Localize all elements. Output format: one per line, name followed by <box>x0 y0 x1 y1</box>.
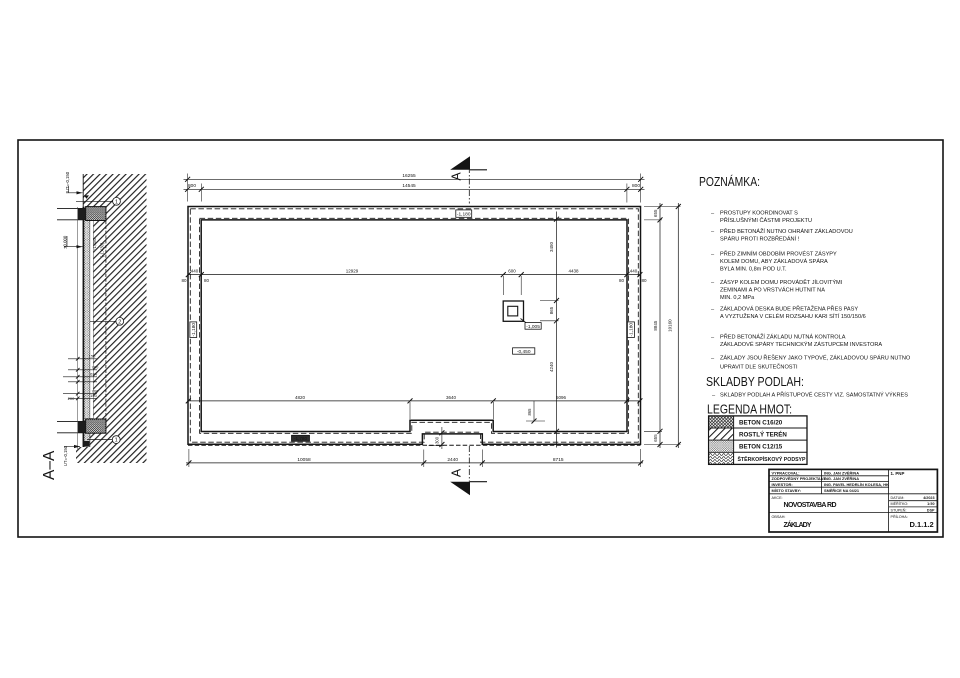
svg-text:700: 700 <box>92 365 99 370</box>
svg-text:12929: 12929 <box>346 269 359 274</box>
svg-text:-1,180: -1,180 <box>457 212 471 218</box>
svg-text:OBSAH:: OBSAH: <box>772 515 786 519</box>
svg-text:ZÁKLADOVÁ DESKA BUDE PŘETAŽENA: ZÁKLADOVÁ DESKA BUDE PŘETAŽENA PŘES PASY <box>720 305 858 313</box>
svg-text:440: 440 <box>630 269 638 274</box>
svg-text:4820: 4820 <box>295 395 306 400</box>
svg-text:MÍSTO STAVBY:: MÍSTO STAVBY: <box>772 488 802 493</box>
svg-text:A–A: A–A <box>41 450 58 480</box>
svg-text:4438: 4438 <box>568 269 579 274</box>
svg-text:KOLEM DOMU, ABY ZÁKLADOVÁ SPÁR: KOLEM DOMU, ABY ZÁKLADOVÁ SPÁRA <box>720 258 828 265</box>
svg-text:80: 80 <box>204 278 210 283</box>
svg-text:150: 150 <box>89 354 96 359</box>
svg-text:UT=-0,150: UT=-0,150 <box>63 445 68 466</box>
svg-text:MIN. 0,2 MPa: MIN. 0,2 MPa <box>720 295 755 301</box>
svg-text:5096: 5096 <box>556 395 567 400</box>
svg-text:3450: 3450 <box>549 241 554 252</box>
svg-text:8845: 8845 <box>653 320 658 331</box>
svg-text:ŠTĚRKOPÍSKOVÝ PODSYP: ŠTĚRKOPÍSKOVÝ PODSYP <box>738 455 806 463</box>
svg-text:ING. JAN ZVĚŘINA: ING. JAN ZVĚŘINA <box>824 476 859 481</box>
svg-text:INVESTOR:: INVESTOR: <box>772 482 793 487</box>
svg-text:624: 624 <box>90 372 97 377</box>
svg-text:SKLADBY PODLAH A PŘÍSTUPOVÉ CE: SKLADBY PODLAH A PŘÍSTUPOVÉ CESTY VIZ. S… <box>720 391 908 399</box>
svg-text:ING. PAVEL HEDRLÍN KOLESA, HK: ING. PAVEL HEDRLÍN KOLESA, HK <box>824 482 889 487</box>
svg-text:4240: 4240 <box>549 361 554 372</box>
svg-text:PŘED BETONÁŽÍ NUTNO OHRÁNIT ZÁ: PŘED BETONÁŽÍ NUTNO OHRÁNIT ZÁKLADOVOU <box>720 227 853 235</box>
svg-text:ROSTLÝ TERÉN: ROSTLÝ TERÉN <box>739 431 787 439</box>
svg-text:ZODPOVĚDNÝ PROJEKTANT:: ZODPOVĚDNÝ PROJEKTANT: <box>772 476 827 481</box>
svg-text:16255: 16255 <box>402 173 416 179</box>
svg-text:300: 300 <box>435 436 440 444</box>
svg-text:600: 600 <box>508 269 516 274</box>
svg-text:1: 1 <box>115 199 118 205</box>
svg-text:DATUM:: DATUM: <box>891 496 905 500</box>
svg-text:PŘÍSLUŠNÝMI ČÁSTMI PROJEKTU: PŘÍSLUŠNÝMI ČÁSTMI PROJEKTU <box>720 216 812 224</box>
svg-text:-0,450: -0,450 <box>517 349 531 355</box>
svg-text:ING. JAN ZVĚŘINA: ING. JAN ZVĚŘINA <box>824 470 859 475</box>
svg-text:(-1,430): (-1,430) <box>100 242 105 257</box>
svg-text:BYLA MIN. 0,8m POD U.T.: BYLA MIN. 0,8m POD U.T. <box>720 267 787 273</box>
svg-text:LEGENDA HMOT:: LEGENDA HMOT: <box>707 402 792 417</box>
svg-text:STUPEŇ:: STUPEŇ: <box>891 507 907 512</box>
svg-text:80: 80 <box>181 278 187 283</box>
svg-text:AKCE:: AKCE: <box>772 496 783 500</box>
svg-text:SMĚŘICE NA 04/21: SMĚŘICE NA 04/21 <box>824 488 860 493</box>
svg-text:A: A <box>450 172 464 181</box>
svg-text:ZÁKLADY JSOU ŘEŠENY JAKO TYPOV: ZÁKLADY JSOU ŘEŠENY JAKO TYPOVÉ, ZÁKLADO… <box>720 354 911 362</box>
svg-text:-1,180: -1,180 <box>629 323 635 337</box>
svg-text:UPRAVIT DLE SKUTEČNOSTI: UPRAVIT DLE SKUTEČNOSTI <box>720 364 798 371</box>
svg-text:SPÁRU PROTI ROZBŘEDÁNÍ !: SPÁRU PROTI ROZBŘEDÁNÍ ! <box>720 235 800 243</box>
svg-text:BETON C16/20: BETON C16/20 <box>739 420 783 427</box>
svg-text:655: 655 <box>653 434 658 442</box>
svg-text:ZÁKLADOVÉ SPÁRY TECHNICKÝM ZÁS: ZÁKLADOVÉ SPÁRY TECHNICKÝM ZÁSTUPCEM INV… <box>720 341 882 348</box>
svg-text:2440: 2440 <box>447 457 458 463</box>
svg-text:UT=-0,150: UT=-0,150 <box>65 171 70 192</box>
svg-text:MĚŘÍTKO:: MĚŘÍTKO: <box>891 501 909 506</box>
svg-text:PŘÍLOHA:: PŘÍLOHA: <box>891 514 908 519</box>
svg-text:VYPRACOVAL:: VYPRACOVAL: <box>772 470 800 475</box>
svg-text:-1,180: -1,180 <box>92 237 97 250</box>
svg-text:A VYZTUŽENA V CELÉM ROZSAHU KA: A VYZTUŽENA V CELÉM ROZSAHU KARI SÍTÍ 15… <box>720 312 866 320</box>
svg-text:10160: 10160 <box>668 319 673 332</box>
svg-text:800: 800 <box>632 183 640 189</box>
svg-text:-1,005: -1,005 <box>526 324 540 330</box>
svg-text:80: 80 <box>641 278 647 283</box>
svg-text:800: 800 <box>188 183 196 189</box>
svg-text:150: 150 <box>90 393 97 398</box>
svg-text:80: 80 <box>619 278 625 283</box>
svg-text:1:50: 1:50 <box>927 502 934 506</box>
svg-text:2: 2 <box>118 319 121 325</box>
svg-text:200: 200 <box>68 396 75 401</box>
svg-text:10058: 10058 <box>297 457 311 463</box>
svg-text:1: 1 <box>115 438 118 444</box>
svg-text:4/2023: 4/2023 <box>923 496 934 500</box>
svg-text:8715: 8715 <box>553 457 564 463</box>
svg-text:A: A <box>450 468 464 477</box>
svg-text:BETON C12/15: BETON C12/15 <box>739 444 783 451</box>
svg-text:865: 865 <box>549 306 554 314</box>
svg-text:ZÁKLADY: ZÁKLADY <box>784 520 812 529</box>
svg-text:PŘED ZIMNÍM OBDOBÍM PROVÉST ZÁ: PŘED ZIMNÍM OBDOBÍM PROVÉST ZÁSYPY <box>720 250 837 258</box>
svg-text:SKLADBY PODLAH:: SKLADBY PODLAH: <box>706 374 804 389</box>
svg-text:D.1.1.2: D.1.1.2 <box>910 520 934 529</box>
svg-text:-1,180: -1,180 <box>191 323 197 337</box>
svg-text:655: 655 <box>653 209 658 217</box>
svg-text:ZEMINAMI A PO VRSTVÁCH HUTNIT: ZEMINAMI A PO VRSTVÁCH HUTNIT NA <box>720 287 825 294</box>
svg-text:DSP: DSP <box>927 508 935 512</box>
svg-text:865: 865 <box>527 408 532 416</box>
svg-text:POZNÁMKA:: POZNÁMKA: <box>699 174 760 189</box>
svg-text:ZÁSYP KOLEM DOMU PROVÁDĚT JÍLO: ZÁSYP KOLEM DOMU PROVÁDĚT JÍLOVITÝMI <box>720 278 843 286</box>
svg-text:PŘED BETONÁŽÍ ZÁKLADU NUTNÁ KO: PŘED BETONÁŽÍ ZÁKLADU NUTNÁ KONTROLA <box>720 333 846 341</box>
svg-text:1. PNP: 1. PNP <box>891 471 905 476</box>
svg-text:3640: 3640 <box>446 395 457 400</box>
svg-text:-1,780: -1,780 <box>294 436 307 441</box>
svg-text:440: 440 <box>191 269 199 274</box>
svg-text:NOVOSTAVBA RD: NOVOSTAVBA RD <box>784 502 837 509</box>
svg-text:14545: 14545 <box>402 183 416 189</box>
svg-text:PROSTUPY KOORDINOVAT S: PROSTUPY KOORDINOVAT S <box>720 211 798 217</box>
